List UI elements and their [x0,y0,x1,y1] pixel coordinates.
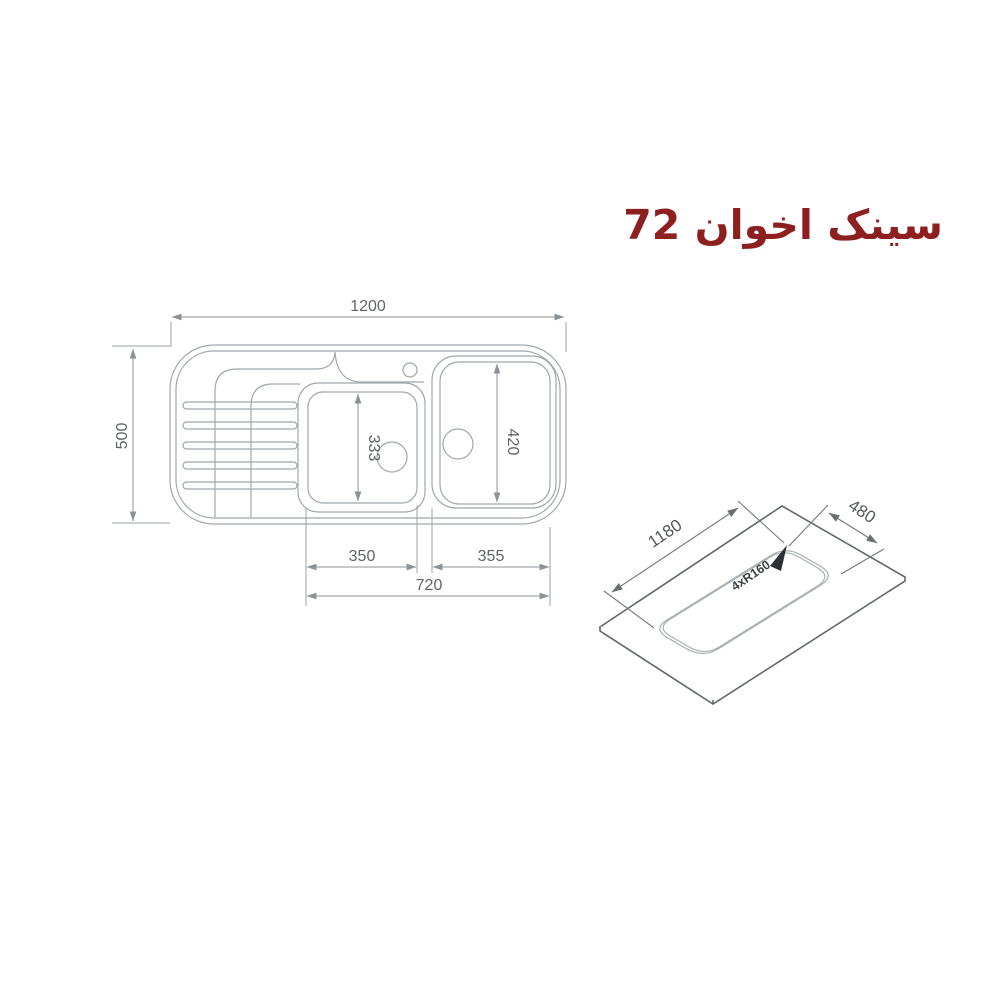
dim-bowl1-width: 350 [349,548,376,565]
product-title: سینک اخوان 72 [623,203,943,248]
groove [183,402,297,409]
right-bowl-surround [432,356,556,508]
page: 1200 500 333 420 350 [0,0,1000,1000]
middle-bowl [298,383,425,512]
contour-line [251,384,300,517]
right-bowl [432,356,556,508]
dim-bowl2-width: 355 [478,548,505,565]
right-bowl-inner [440,362,550,504]
faucet-hole [403,363,417,377]
dim-overall-width: 1200 [350,298,386,315]
sink-top-view: 1200 500 333 420 350 [112,298,566,606]
right-bowl-drain [443,429,473,459]
drainboard-grooves [183,402,297,489]
top-view-dimensions: 1200 500 333 420 350 [112,298,566,606]
groove [183,422,297,429]
dim-cutout-depth: 480 [845,496,879,527]
dim-bowl2-length: 420 [504,429,521,456]
dim-bowls-span: 720 [416,577,443,594]
dim-overall-depth: 500 [114,423,131,450]
groove [183,442,297,449]
groove [183,462,297,469]
drainboard-contours [215,352,424,517]
middle-bowl-surround [298,383,425,512]
groove [183,482,297,489]
cutout-iso-view: 1180 480 4xR160 [600,496,905,704]
middle-bowl-inner [308,392,417,503]
dim-cutout-length: 1180 [644,515,685,551]
dim-bowl1-length: 333 [365,435,382,462]
technical-drawing: 1200 500 333 420 350 [0,0,1000,1000]
contour-line [215,352,335,517]
